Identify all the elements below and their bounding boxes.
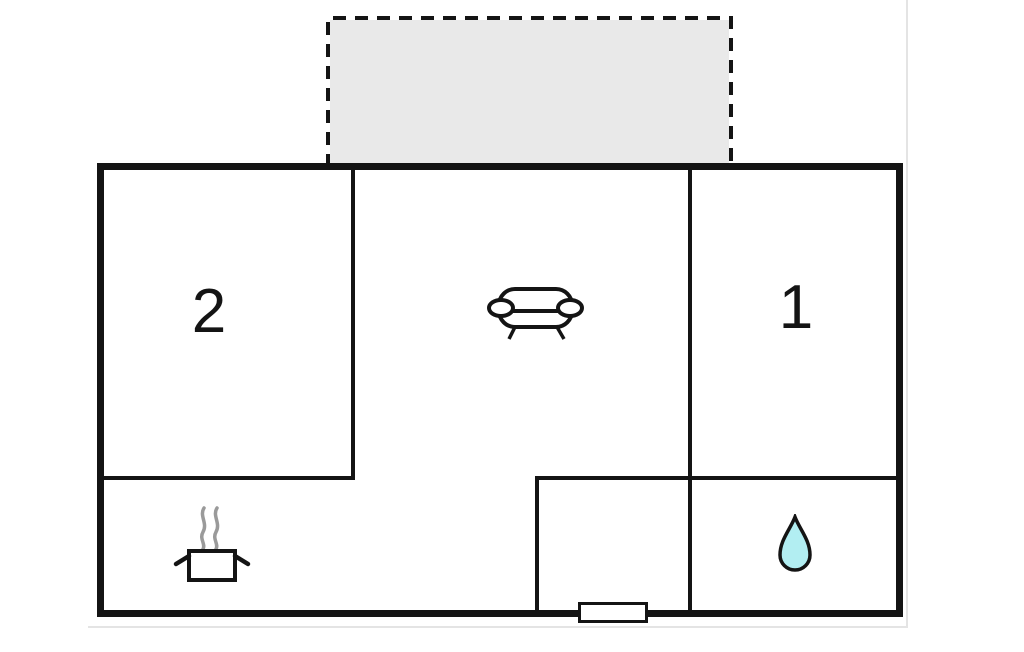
entrance-door xyxy=(578,602,648,623)
wall-bedroom2-bottom xyxy=(104,476,353,480)
bedroom1-label: 1 xyxy=(746,280,846,336)
bedroom2-label: 2 xyxy=(159,284,259,340)
wall-hall-top xyxy=(535,476,896,480)
water-drop-icon xyxy=(775,514,815,576)
cooking-pot-icon xyxy=(170,502,255,586)
sofa-icon xyxy=(486,284,586,342)
wall-bedroom2-living xyxy=(351,170,355,480)
wall-hall-left xyxy=(535,480,539,610)
wall-living-bedroom1 xyxy=(688,170,692,610)
floor-plan: 2 1 xyxy=(0,0,1024,652)
terrace-dashed-border xyxy=(326,16,733,167)
image-edge-right xyxy=(906,0,908,628)
image-edge-bottom xyxy=(88,626,907,628)
